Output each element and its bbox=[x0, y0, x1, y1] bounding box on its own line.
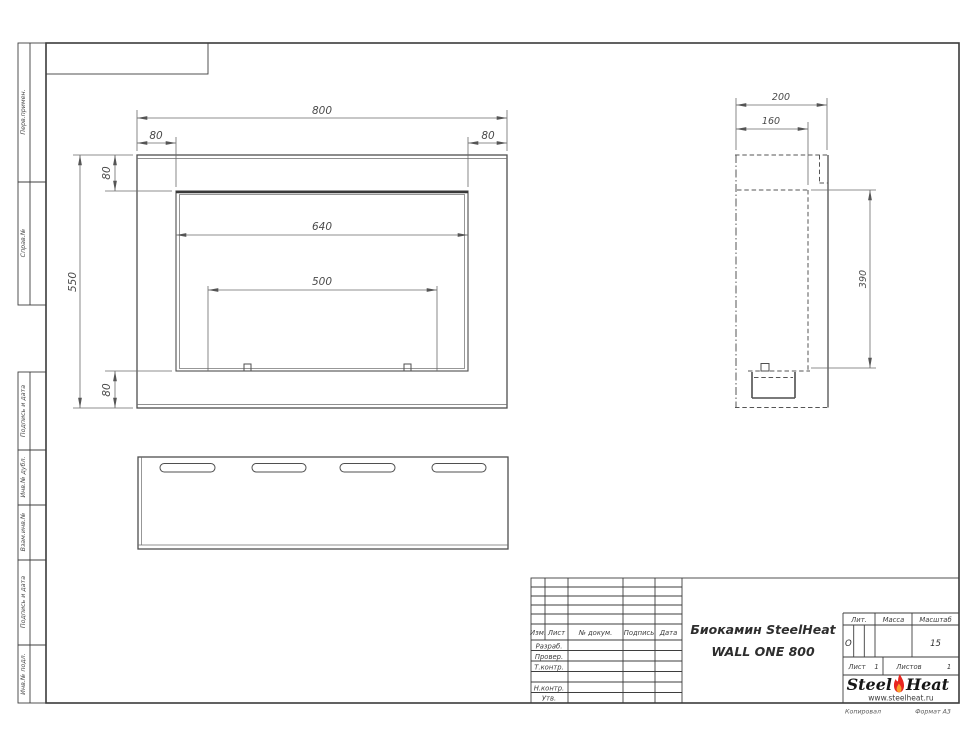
dim-side-opening-height: 390 bbox=[858, 270, 869, 288]
dim-front-margin-bottom: 80 bbox=[101, 383, 113, 397]
tb-sheet-label: Лист bbox=[847, 663, 866, 671]
dim-front-height: 550 bbox=[67, 272, 79, 292]
burner-clip-left bbox=[244, 364, 251, 371]
tb-sheet-value: 1 bbox=[874, 663, 878, 671]
drawing-sheet: Перв.примен. Справ.№ Подпись и дата Инв.… bbox=[0, 0, 970, 749]
vent-slot-1 bbox=[160, 464, 215, 473]
designation-box bbox=[46, 43, 208, 74]
vent-slot-2 bbox=[252, 464, 306, 473]
sheet-frame bbox=[46, 43, 959, 703]
tb-row-prover: Провер. bbox=[535, 653, 563, 661]
side-view bbox=[735, 155, 828, 408]
margin-label-inv-podl: Инв.№ подл. bbox=[20, 653, 27, 694]
footer-format-label: Формат А3 bbox=[915, 709, 951, 716]
tb-row-nkontr: Н.контр. bbox=[534, 685, 564, 693]
vent-slot-3 bbox=[340, 464, 395, 473]
dim-burner-width: 500 bbox=[312, 276, 332, 288]
margin-label-perv-primen: Перв.примен. bbox=[20, 89, 27, 134]
vent-slot-4 bbox=[432, 464, 486, 473]
burner-box-side bbox=[752, 372, 795, 398]
tb-col-izm: Изм. bbox=[530, 629, 546, 637]
footer-copied-label: Копировал bbox=[845, 709, 881, 716]
tb-row-tkontr: Т.контр. bbox=[534, 664, 563, 672]
margin-label-podpis-data-2: Подпись и дата bbox=[20, 576, 27, 628]
dim-opening-width: 640 bbox=[312, 221, 332, 233]
tb-doc-name-line1: Биокамин SteelHeat bbox=[690, 622, 836, 637]
tb-mass-label: Масса bbox=[883, 616, 905, 624]
tb-col-list: Лист bbox=[547, 629, 566, 637]
dim-side-depth: 200 bbox=[772, 92, 790, 103]
margin-label-vzam-inv: Взам.инв.№ bbox=[20, 512, 27, 551]
logo-text-steel: Steel bbox=[847, 675, 892, 694]
tb-sheets-label: Листов bbox=[895, 663, 921, 671]
flame-icon bbox=[894, 674, 904, 692]
tb-lit-label: Лит. bbox=[850, 616, 867, 624]
tb-col-sign: Подпись bbox=[624, 629, 655, 637]
left-margin-column: Перв.примен. Справ.№ Подпись и дата Инв.… bbox=[18, 43, 46, 703]
dim-side-inner-depth: 160 bbox=[762, 116, 780, 127]
tb-col-doc: № докум. bbox=[578, 629, 613, 637]
burner-clip-right bbox=[404, 364, 411, 371]
tb-row-razrab: Разраб. bbox=[536, 643, 563, 651]
tb-scale-label: Масштаб bbox=[919, 616, 951, 624]
burner-clip-side bbox=[761, 364, 769, 372]
tb-scale-value: 15 bbox=[930, 639, 941, 649]
tb-row-utv: Утв. bbox=[542, 695, 556, 703]
logo-steelheat: Steel Heat www.steelheat.ru bbox=[847, 674, 950, 703]
tb-sheets-value: 1 bbox=[947, 663, 951, 671]
tb-lit-value: О bbox=[845, 639, 852, 649]
dim-front-width: 800 bbox=[312, 105, 332, 117]
margin-label-inv-dubl: Инв.№ дубл. bbox=[19, 456, 27, 497]
dim-front-margin-right: 80 bbox=[481, 130, 495, 142]
bottom-view bbox=[138, 457, 508, 549]
footer-notes: Копировал Формат А3 bbox=[845, 709, 951, 716]
tb-doc-name-line2: WALL ONE 800 bbox=[711, 644, 815, 659]
front-view-dimensions: 800 80 80 550 80 80 640 500 bbox=[67, 105, 507, 408]
logo-text-heat: Heat bbox=[905, 675, 950, 694]
margin-label-podpis-data-1: Подпись и дата bbox=[20, 385, 27, 437]
dim-front-margin-top: 80 bbox=[101, 166, 113, 180]
margin-label-sprav-no: Справ.№ bbox=[20, 228, 27, 257]
logo-url: www.steelheat.ru bbox=[868, 694, 934, 703]
side-view-dimensions: 200 160 390 bbox=[736, 92, 876, 368]
dim-front-margin-left: 80 bbox=[149, 130, 163, 142]
tb-col-date: Дата bbox=[659, 629, 678, 637]
